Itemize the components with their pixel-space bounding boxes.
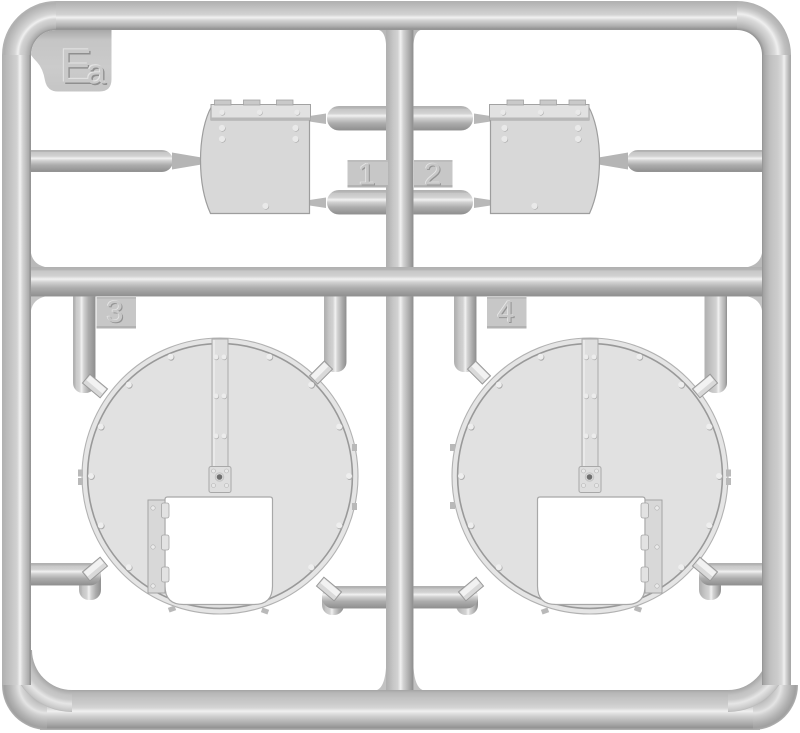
svg-text:4: 4 (497, 294, 514, 329)
svg-text:3: 3 (106, 294, 123, 329)
svg-text:a: a (87, 54, 106, 92)
svg-text:2: 2 (424, 157, 441, 192)
svg-text:1: 1 (358, 157, 375, 192)
